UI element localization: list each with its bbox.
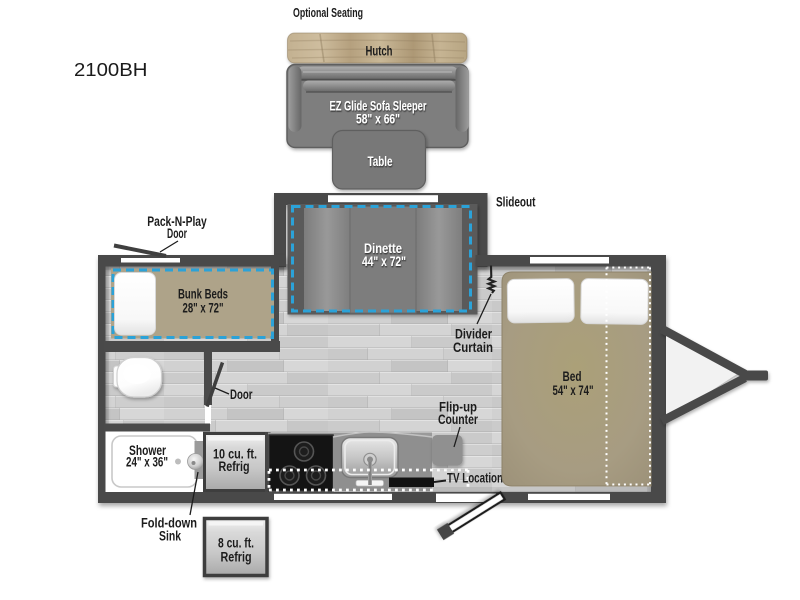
svg-text:28" x 72": 28" x 72": [183, 301, 224, 316]
svg-text:2100BH: 2100BH: [74, 59, 148, 80]
svg-text:Door: Door: [167, 226, 187, 241]
svg-text:Curtain: Curtain: [453, 340, 493, 355]
svg-text:Counter: Counter: [438, 412, 479, 427]
svg-text:Bed: Bed: [563, 369, 582, 384]
svg-text:44" x 72": 44" x 72": [362, 254, 406, 269]
svg-text:TV Location: TV Location: [447, 471, 503, 486]
svg-text:Sink: Sink: [159, 529, 181, 544]
svg-text:Refrig: Refrig: [219, 459, 250, 474]
svg-text:Bunk Beds: Bunk Beds: [178, 287, 228, 302]
svg-text:Refrig: Refrig: [221, 550, 252, 565]
svg-text:Door: Door: [230, 387, 253, 402]
svg-text:Slideout: Slideout: [496, 195, 536, 210]
svg-text:8 cu. ft.: 8 cu. ft.: [218, 536, 254, 551]
svg-text:Hutch: Hutch: [366, 44, 393, 59]
svg-text:54" x 74": 54" x 74": [553, 383, 594, 398]
svg-text:24" x 36": 24" x 36": [126, 455, 168, 470]
svg-text:Table: Table: [368, 154, 393, 169]
svg-text:Optional Seating: Optional Seating: [293, 5, 363, 20]
svg-text:58" x 66": 58" x 66": [356, 112, 400, 127]
